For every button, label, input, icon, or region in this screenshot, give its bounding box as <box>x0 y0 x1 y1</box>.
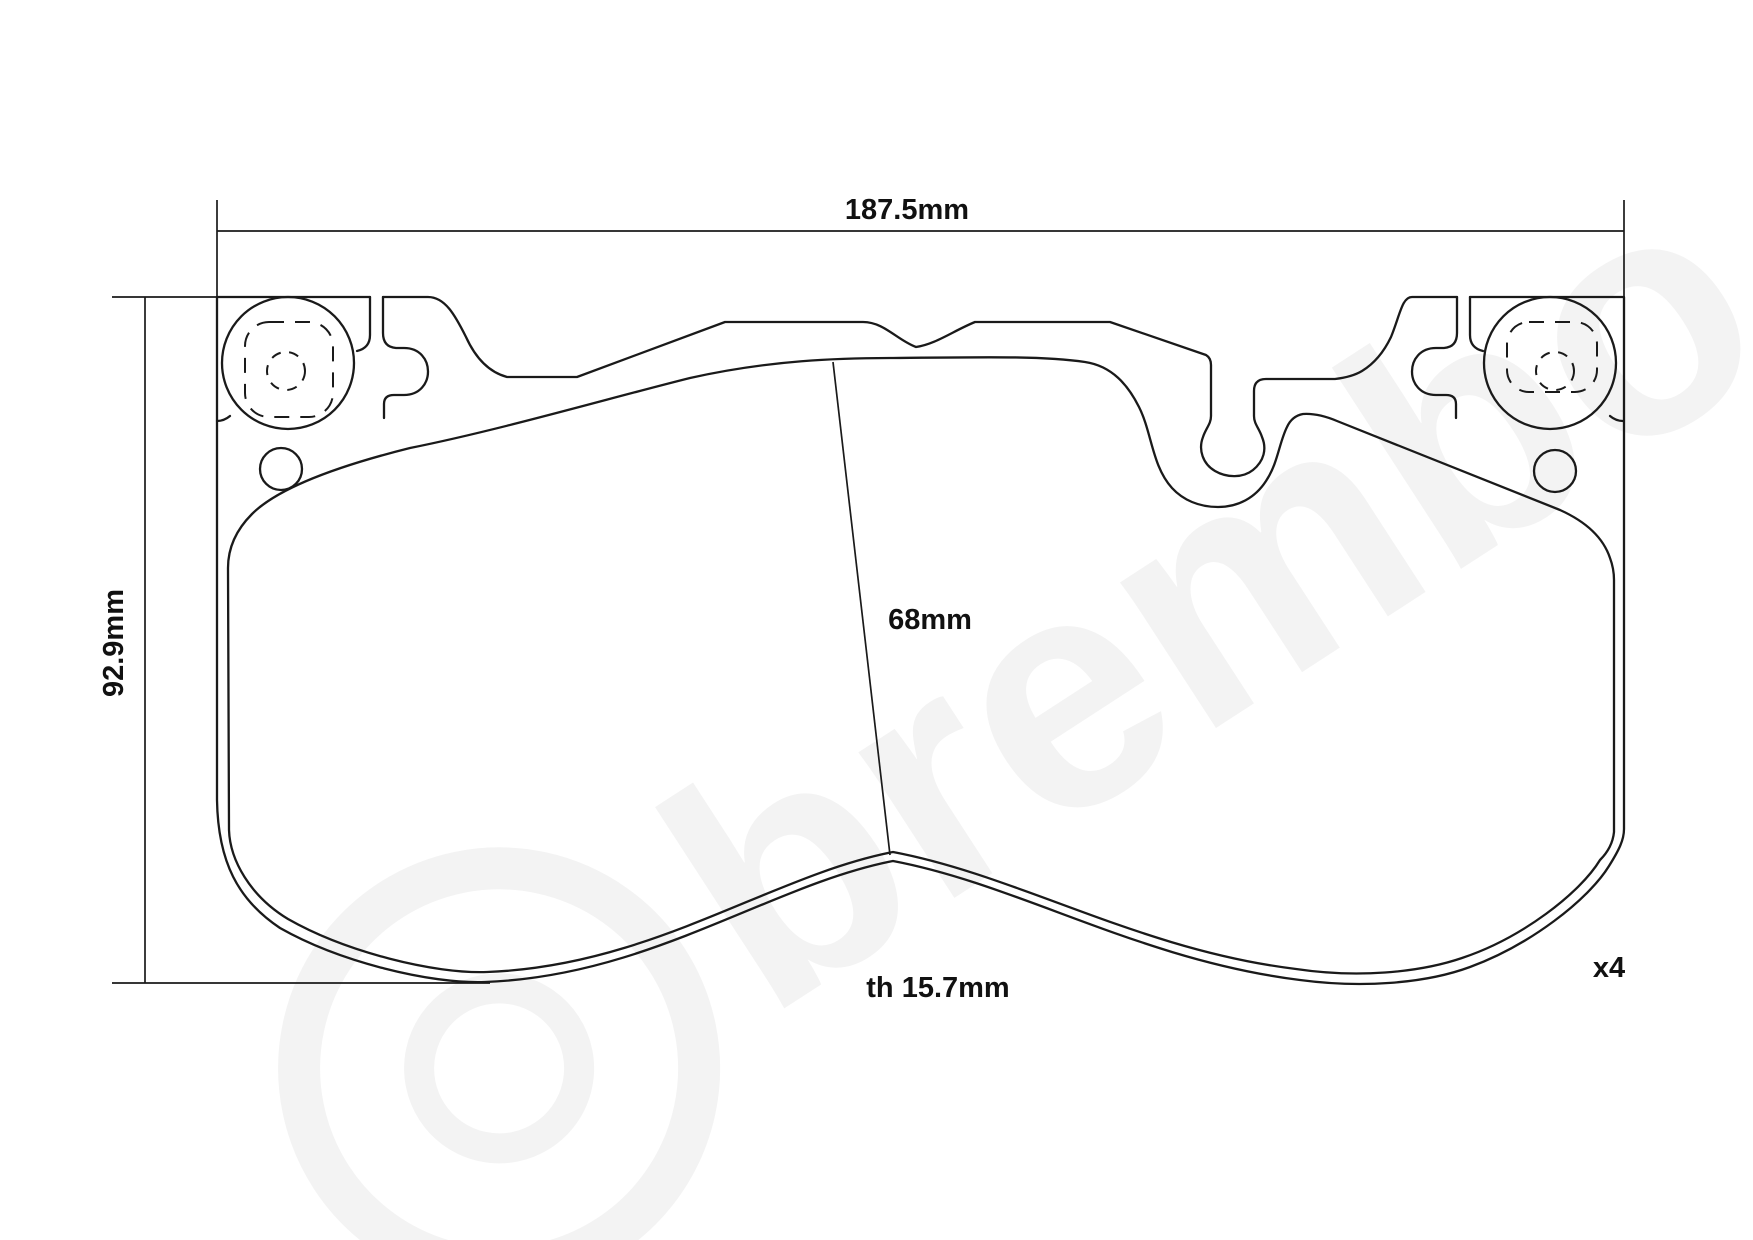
left-pin-cutout <box>217 297 428 421</box>
left-pin-hole-dashed <box>267 352 305 390</box>
left-pin-boss-circle <box>222 297 354 429</box>
brembo-watermark: brembo <box>222 105 1753 1240</box>
watermark-text: brembo <box>603 110 1753 1079</box>
height-dimension-label: 92.9mm <box>98 589 130 697</box>
left-small-hole <box>260 448 302 490</box>
pad-height-label: 68mm <box>888 604 972 636</box>
quantity-label: x4 <box>1593 952 1625 984</box>
width-dimension-label: 187.5mm <box>845 194 969 226</box>
left-edge-hook <box>217 416 230 421</box>
watermark-logo-inner-circle <box>388 958 609 1179</box>
drawing-canvas: brembo <box>0 0 1753 1240</box>
left-pin-seat-dashed <box>245 322 333 417</box>
left-cutout-cavity <box>383 297 428 418</box>
thickness-label: th 15.7mm <box>866 972 1009 1004</box>
brake-pad-drawing: brembo <box>0 0 1753 1240</box>
left-slot-outer-wall <box>357 297 370 351</box>
